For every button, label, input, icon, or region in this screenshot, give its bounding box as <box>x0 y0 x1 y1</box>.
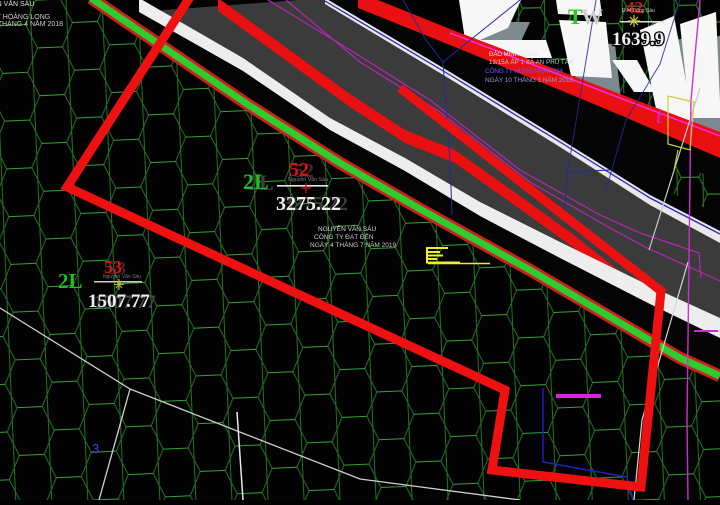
svg-text:t: t <box>656 103 663 128</box>
svg-text:0 THÁNG 4 NĂM 2018: 0 THÁNG 4 NĂM 2018 <box>0 19 63 28</box>
svg-text:NGÀY 4 THÁNG 7 NĂM 2019: NGÀY 4 THÁNG 7 NĂM 2019 <box>310 240 396 249</box>
svg-text:ẾN VĂN SÁU: ẾN VĂN SÁU <box>0 0 34 8</box>
svg-text:Nguyễn Văn Sáu: Nguyễn Văn Sáu <box>103 273 141 280</box>
svg-text:13/15A ẤP 1 XÃ AN PHÚ TÂY: 13/15A ẤP 1 XÃ AN PHÚ TÂY <box>489 59 573 66</box>
svg-text:Nguyễn Văn Sáu: Nguyễn Văn Sáu <box>288 176 328 183</box>
svg-text:TY HOÀNG LONG: TY HOÀNG LONG <box>0 12 50 21</box>
svg-text:CÔNG TY HƯNG PHÁT 234: CÔNG TY HƯNG PHÁT 234 <box>485 66 563 75</box>
svg-text:ĐÀO MINH DŨNG: ĐÀO MINH DŨNG <box>489 51 539 58</box>
svg-text:2L: 2L <box>243 169 269 194</box>
svg-text:NGÀY 10 THÁNG 5 NĂM 2018: NGÀY 10 THÁNG 5 NĂM 2018 <box>485 75 573 84</box>
svg-text:3275.22: 3275.22 <box>276 193 341 215</box>
svg-text:NGUYỄN VĂN SÁU: NGUYỄN VĂN SÁU <box>318 224 376 233</box>
svg-text:3: 3 <box>92 441 99 456</box>
svg-text:Đ.M Dũng Sáu: Đ.M Dũng Sáu <box>622 8 655 14</box>
svg-text:1507.77: 1507.77 <box>88 291 150 312</box>
svg-text:1639.9: 1639.9 <box>612 29 664 50</box>
svg-text:2L: 2L <box>58 269 83 293</box>
svg-text:W: W <box>581 4 603 29</box>
